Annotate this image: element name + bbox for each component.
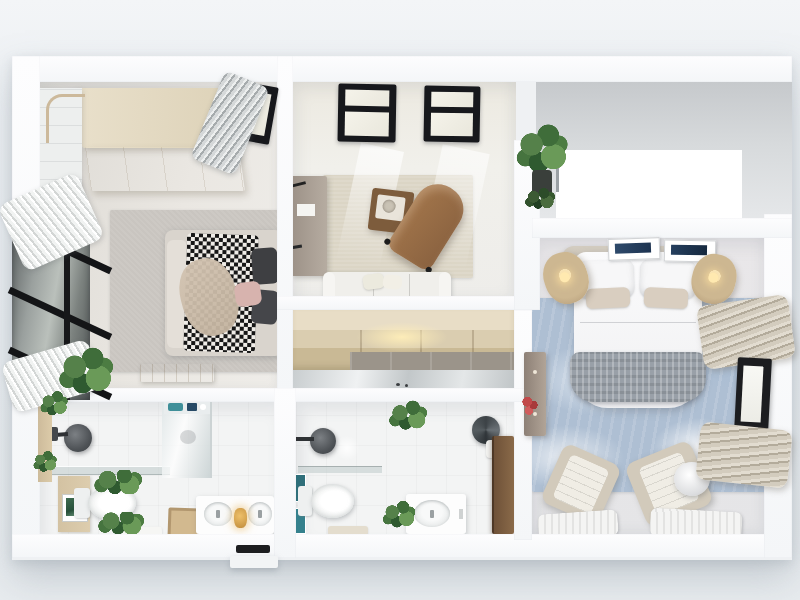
curtain-bundle-lower (695, 421, 793, 488)
dark-pillow-1 (251, 247, 279, 285)
desk-paper (297, 204, 315, 216)
vanity-amber-lamp (234, 508, 247, 528)
living-plant (516, 122, 572, 210)
sofa-pillow-2 (382, 274, 402, 290)
white-cutout-region (556, 150, 742, 218)
toilet-2-tank (298, 486, 312, 516)
front-door-threshold (236, 545, 270, 553)
bath2-floor-plant (382, 500, 416, 530)
accent-pillow-right (644, 287, 689, 309)
skylight-1-pane-a (345, 90, 389, 107)
bath-plant-top (40, 390, 68, 418)
wall-living-hallway (277, 296, 540, 310)
master-bed (574, 252, 702, 408)
shelf-white-jar (200, 404, 206, 410)
skylight-2-pane-b (431, 113, 473, 137)
wall-bedroom-living (277, 56, 293, 396)
skylight-1-pane-b (345, 112, 389, 137)
toilet-2 (298, 484, 354, 518)
mirror-speck-1 (396, 383, 400, 386)
outer-wall-bottom (12, 534, 792, 558)
bath2-glass-line (298, 466, 382, 473)
master-window (734, 357, 772, 433)
pink-pillow (233, 280, 262, 307)
toilet-main-highlight (96, 494, 122, 510)
bath-plant-mid-2 (96, 512, 146, 534)
vanity-faucet-right (258, 510, 262, 518)
vanity-2-faucet (430, 510, 434, 518)
skylight-2-pane-a (431, 92, 473, 108)
wall-art-frame-1 (608, 237, 661, 261)
dresser-flowers (521, 394, 539, 416)
shower-arm-2 (296, 437, 314, 441)
glass-reflection-blob (180, 430, 196, 444)
living-skylight-1 (337, 83, 396, 142)
closet-light-glow (356, 322, 448, 352)
double-vanity (196, 496, 274, 534)
accent-pillow-left (586, 287, 631, 309)
dresser-knob-1 (533, 370, 537, 374)
navy-box (187, 403, 197, 411)
toilet-2-highlight (318, 492, 342, 507)
vanity-faucet-left (216, 510, 220, 518)
wall-master-top (532, 218, 792, 238)
duvet-fold-line (580, 322, 696, 323)
foot-bench (140, 364, 214, 382)
lamp-left-bulb (558, 271, 571, 284)
bath2-wood-door (492, 436, 514, 534)
mirror-speck-2 (405, 384, 408, 387)
vanity-2-handle (459, 509, 463, 519)
hallway-closet (290, 308, 516, 370)
bath2-hanging-plant (388, 400, 428, 432)
wall-art-1-print (615, 242, 651, 253)
bath-plant-mid-1 (92, 470, 144, 494)
shower-head-2 (310, 428, 336, 454)
bedroom-bed (165, 230, 283, 356)
clothes-rail-pipe (46, 94, 85, 143)
knit-throw (570, 352, 706, 402)
wall-art-2-print (671, 245, 707, 256)
lamp-right-bulb (707, 272, 719, 284)
wall-desk (291, 176, 327, 276)
living-skylight-2 (424, 86, 481, 143)
sofa-pillow-1 (362, 273, 385, 291)
bath-plant-ledge (33, 450, 57, 474)
master-window-glass (741, 365, 764, 422)
entry-step (230, 556, 278, 568)
outer-wall-top (12, 56, 792, 82)
teal-towel (168, 403, 183, 411)
shower-head-main (64, 424, 92, 452)
chair-left-cushion (552, 454, 610, 515)
bath2-mirror-light (334, 436, 360, 460)
closet-open-shelf (350, 352, 516, 370)
bath-shelf-teal-items (164, 400, 210, 414)
living-plant-fronds (524, 188, 556, 210)
floorplan-render (0, 0, 800, 600)
wall-bath-divider (274, 388, 296, 558)
